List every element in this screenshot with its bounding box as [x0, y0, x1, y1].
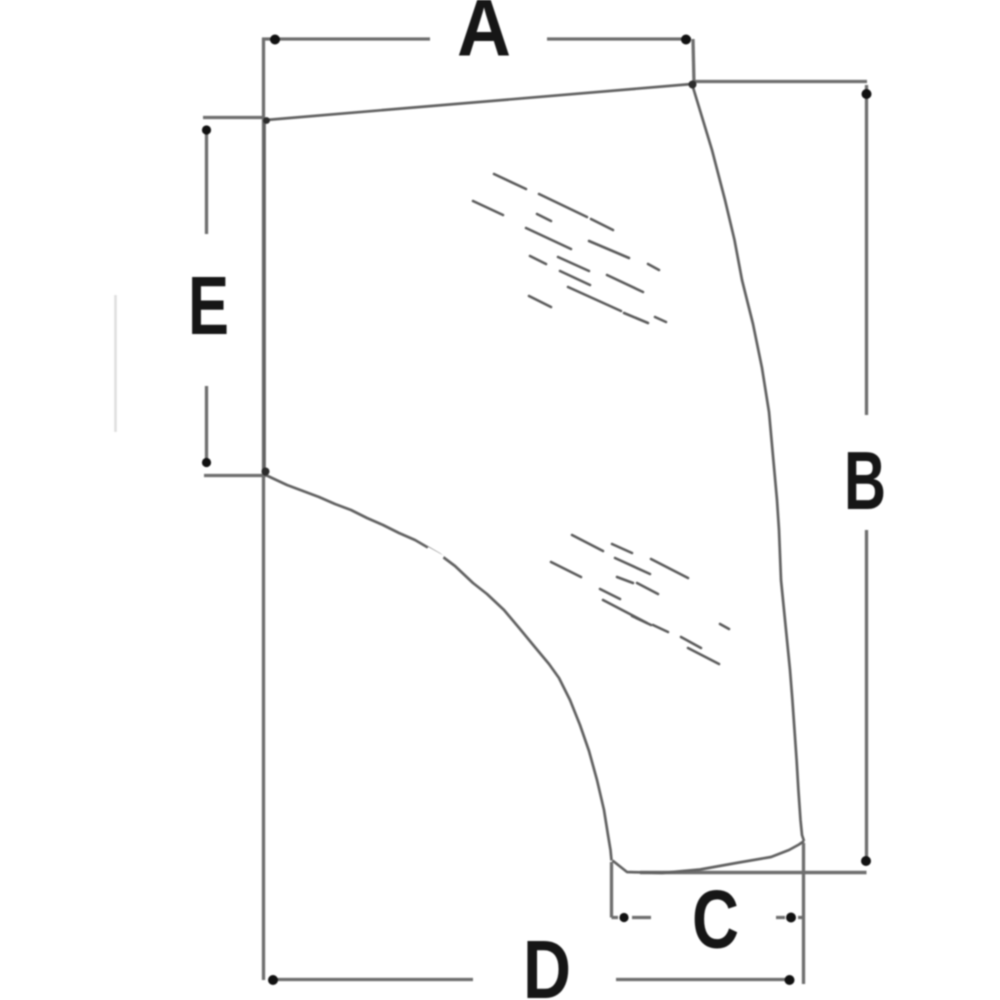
svg-text:B: B — [844, 434, 886, 527]
svg-text:E: E — [188, 259, 229, 352]
svg-text:C: C — [692, 873, 739, 966]
svg-text:A: A — [457, 0, 511, 74]
svg-text:D: D — [523, 923, 571, 1000]
